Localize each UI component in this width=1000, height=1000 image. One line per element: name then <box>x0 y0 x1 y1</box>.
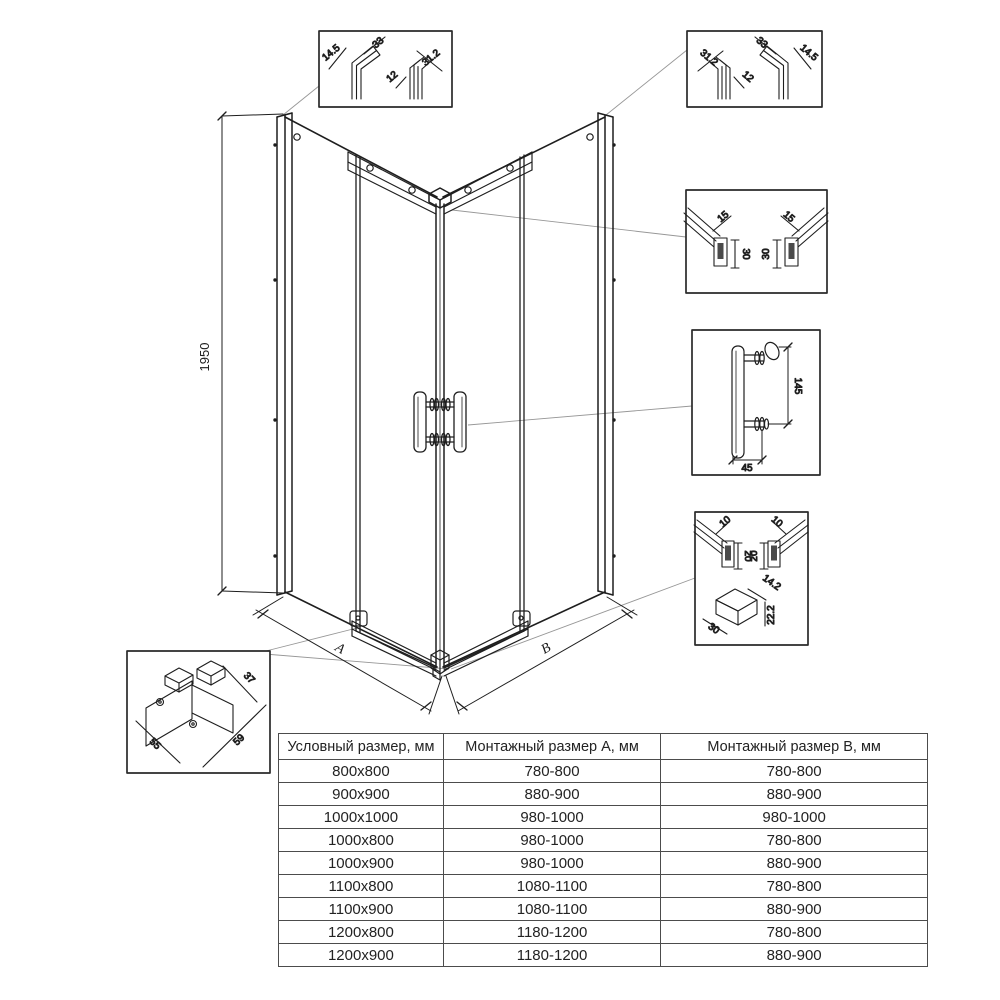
fixed-glass-panels <box>285 117 605 667</box>
table-cell: 1180-1200 <box>443 921 660 944</box>
table-cell: 880-900 <box>661 783 928 806</box>
dim-label: 30 <box>740 248 751 260</box>
table-cell: 780-800 <box>443 760 660 783</box>
dim-label: 30 <box>761 248 772 260</box>
dim-label: 22.2 <box>766 605 777 625</box>
detail-wall-profile-right: 31.2 12 33 14.5 <box>687 31 822 107</box>
corner-post <box>429 188 451 666</box>
table-cell: 1200x800 <box>279 921 444 944</box>
bottom-rail-right <box>444 611 530 676</box>
table-cell: 980-1000 <box>443 806 660 829</box>
table-cell: 880-900 <box>443 783 660 806</box>
table-row: 1200x800 1180-1200 780-800 <box>279 921 928 944</box>
detail-roller-bracket: 37 55 59 <box>127 651 270 773</box>
table-row: 900x900 880-900 880-900 <box>279 783 928 806</box>
table-row: 1000x1000 980-1000 980-1000 <box>279 806 928 829</box>
table-row: 1000x900 980-1000 880-900 <box>279 852 928 875</box>
top-rail-left <box>348 152 436 214</box>
table-cell: 1000x1000 <box>279 806 444 829</box>
table-header-row: Условный размер, мм Монтажный размер А, … <box>279 734 928 760</box>
table-cell: 1100x800 <box>279 875 444 898</box>
table-cell: 780-800 <box>661 829 928 852</box>
sliding-door-right <box>444 155 524 668</box>
table-cell: 880-900 <box>661 852 928 875</box>
table-cell: 780-800 <box>661 760 928 783</box>
height-dim-label: 1950 <box>197 343 212 372</box>
dim-label: 145 <box>792 378 803 395</box>
right-wall-profile <box>598 113 613 595</box>
col-header-mount-size-b: Монтажный размер В, мм <box>661 734 928 760</box>
dim-label: 20 <box>749 550 760 562</box>
detail-wall-profile-left: 14.5 33 12 31.2 <box>319 31 452 107</box>
top-rail-right <box>444 152 532 214</box>
table-cell: 900x900 <box>279 783 444 806</box>
table-cell: 880-900 <box>661 898 928 921</box>
table-cell: 780-800 <box>661 921 928 944</box>
table-row: 1200x900 1180-1200 880-900 <box>279 944 928 967</box>
table-row: 1100x900 1080-1100 880-900 <box>279 898 928 921</box>
size-table: Условный размер, мм Монтажный размер А, … <box>278 733 928 967</box>
detail-top-rail: 15 30 15 30 <box>684 190 828 293</box>
col-header-nominal-size: Условный размер, мм <box>279 734 444 760</box>
detail-handle: 145 45 <box>692 330 820 475</box>
leader-lines <box>240 50 695 669</box>
height-dimension <box>218 112 283 595</box>
table-cell: 1080-1100 <box>443 898 660 921</box>
table-cell: 880-900 <box>661 944 928 967</box>
glass-mount-holes <box>294 134 593 140</box>
dim-label: 45 <box>741 463 753 474</box>
main-drawing <box>218 112 637 714</box>
table-cell: 1080-1100 <box>443 875 660 898</box>
table-cell: 1180-1200 <box>443 944 660 967</box>
left-wall-profile <box>277 113 292 595</box>
table-cell: 1000x900 <box>279 852 444 875</box>
table-cell: 1000x800 <box>279 829 444 852</box>
bottom-rail-left <box>350 611 436 676</box>
table-cell: 980-1000 <box>661 806 928 829</box>
table-row: 800x800 780-800 780-800 <box>279 760 928 783</box>
table-cell: 980-1000 <box>443 852 660 875</box>
table-cell: 1100x900 <box>279 898 444 921</box>
table-cell: 1200x900 <box>279 944 444 967</box>
detail-bottom-rail: 10 20 10 20 14.2 22.2 30 <box>694 512 808 645</box>
col-header-mount-size-a: Монтажный размер А, мм <box>443 734 660 760</box>
technical-drawing-page: 1950 A B 14.5 33 12 31.2 <box>0 0 1000 1000</box>
dim-b-label: B <box>539 640 554 657</box>
table-row: 1000x800 980-1000 780-800 <box>279 829 928 852</box>
sliding-door-left <box>356 155 436 668</box>
table-cell: 780-800 <box>661 875 928 898</box>
table-cell: 980-1000 <box>443 829 660 852</box>
table-row: 1100x800 1080-1100 780-800 <box>279 875 928 898</box>
table-cell: 800x800 <box>279 760 444 783</box>
